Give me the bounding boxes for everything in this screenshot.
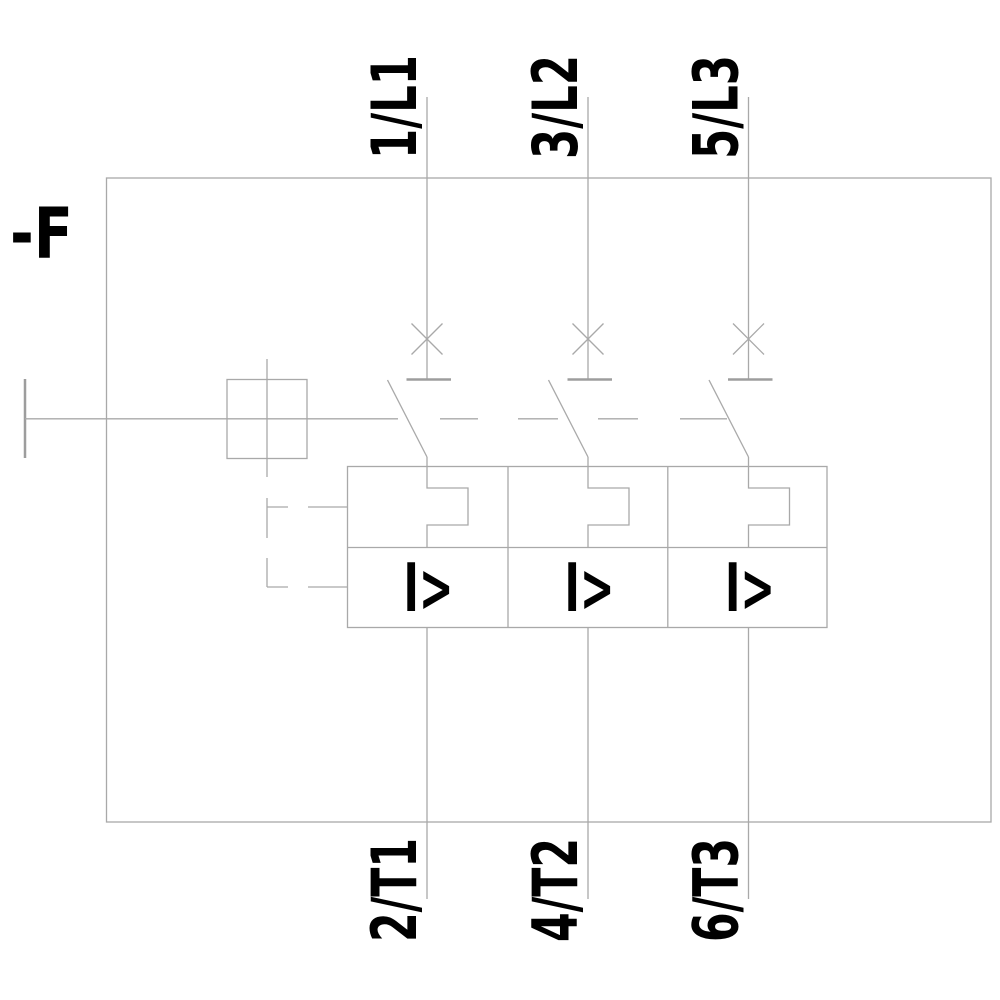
terminal-label-bottom: 2/T1: [358, 838, 431, 942]
terminal-label-top: 3/L2: [519, 55, 592, 159]
terminal-label-bottom: 4/T2: [519, 838, 592, 942]
schematic-canvas: -F 1/L1: [0, 0, 1000, 1000]
device-designation-label: -F: [10, 193, 73, 275]
terminal-label-top: 5/L3: [680, 55, 753, 159]
trip-coupling-dashes: [267, 498, 348, 587]
device-outline: [107, 178, 992, 822]
overcurrent-release-symbol: I>: [404, 549, 454, 627]
latch-icon: [588, 457, 629, 548]
pole-2: 3/L2 I> 4/T2: [519, 55, 629, 942]
overcurrent-release-symbol: I>: [725, 549, 775, 627]
pole-1: 1/L1 I> 2/T1: [358, 55, 468, 942]
terminal-label-top: 1/L1: [358, 55, 431, 159]
latch-icon: [427, 457, 468, 548]
overcurrent-release-symbol: I>: [565, 549, 615, 627]
terminal-label-bottom: 6/T3: [680, 838, 753, 942]
circuit-breaker-schematic: -F 1/L1: [0, 0, 1000, 1000]
manual-operator: [25, 359, 727, 587]
latch-icon: [749, 457, 790, 548]
pole-3: 5/L3 I> 6/T3: [680, 55, 790, 942]
